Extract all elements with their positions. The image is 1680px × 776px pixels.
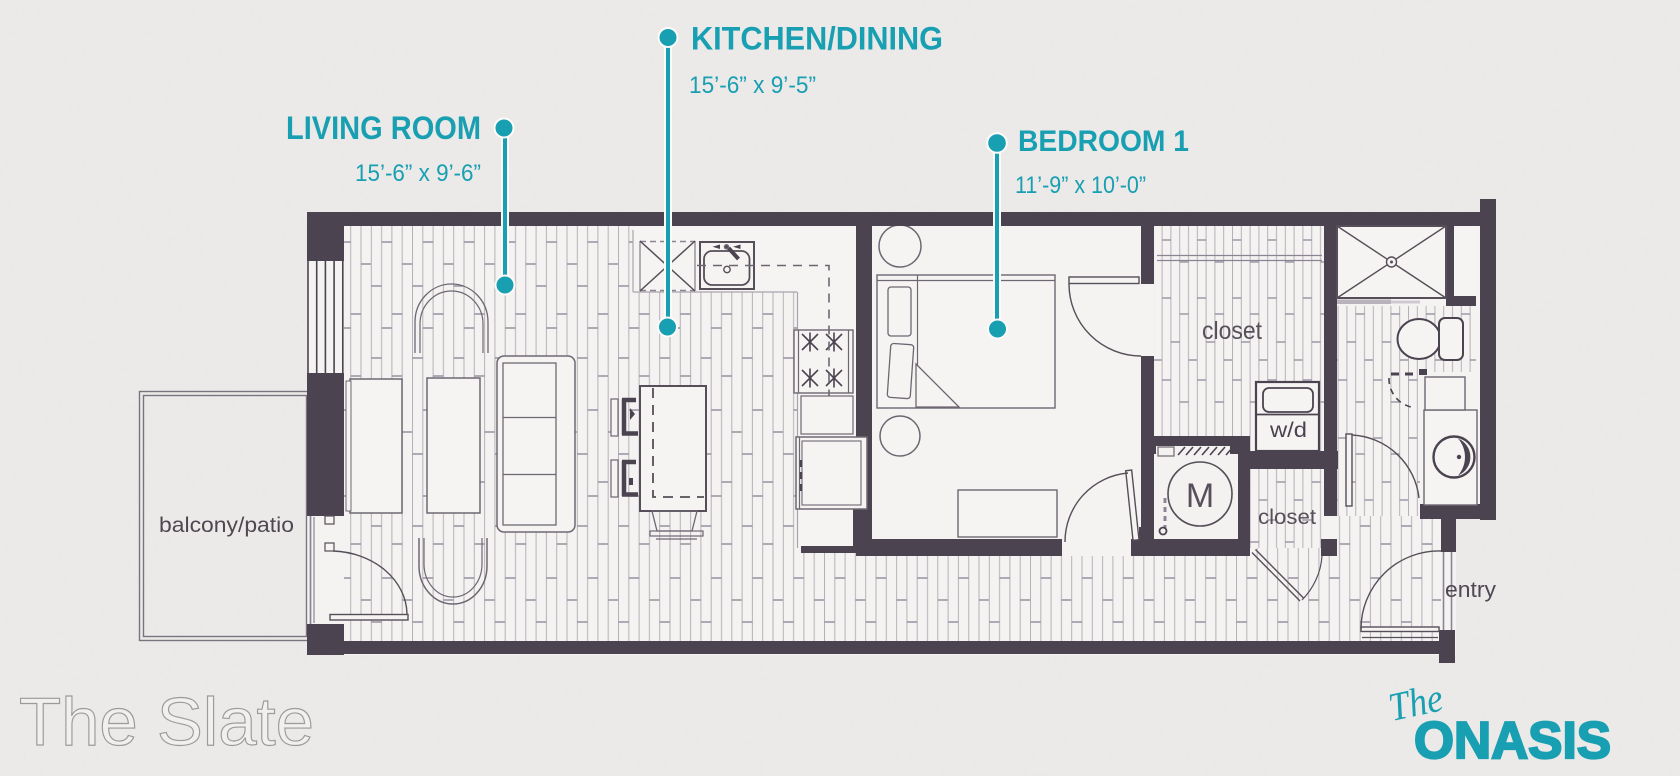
svg-text:LIVING ROOM: LIVING ROOM <box>286 110 481 146</box>
svg-text:The Slate: The Slate <box>19 684 314 760</box>
svg-text:11’-9” x 10’-0”: 11’-9” x 10’-0” <box>1015 172 1146 199</box>
svg-text:closet: closet <box>1258 506 1316 529</box>
svg-text:balcony/patio: balcony/patio <box>159 514 294 537</box>
svg-text:closet: closet <box>1202 317 1262 345</box>
svg-text:BEDROOM 1: BEDROOM 1 <box>1018 125 1189 158</box>
svg-text:w/d: w/d <box>1269 419 1307 442</box>
svg-text:15’-6” x 9’-5”: 15’-6” x 9’-5” <box>689 72 816 99</box>
svg-text:15’-6” x 9’-6”: 15’-6” x 9’-6” <box>355 160 481 187</box>
svg-text:KITCHEN/DINING: KITCHEN/DINING <box>691 21 943 57</box>
svg-text:ONASIS: ONASIS <box>1414 712 1611 770</box>
svg-text:entry: entry <box>1445 577 1496 602</box>
svg-text:M: M <box>1186 477 1214 515</box>
